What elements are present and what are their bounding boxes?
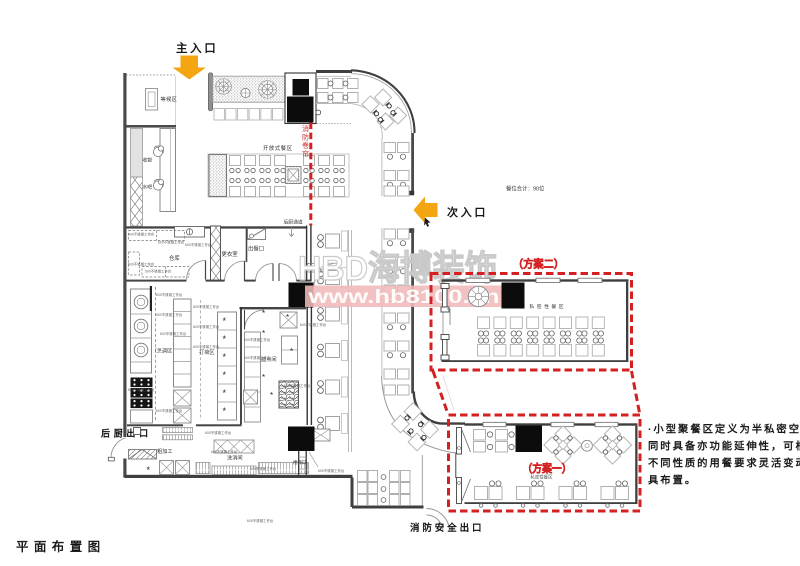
svg-text:消防安全出口: 消防安全出口 — [410, 522, 484, 534]
svg-text:·小型聚餐区定义为半私密空间，: ·小型聚餐区定义为半私密空间， — [648, 423, 800, 436]
svg-text:*: * — [147, 465, 151, 475]
svg-text:私密性餐区: 私密性餐区 — [530, 303, 567, 310]
svg-text:600不锈钢工作台: 600不锈钢工作台 — [128, 232, 154, 237]
svg-text:打荷区: 打荷区 — [199, 348, 215, 356]
svg-text:600不锈钢工作台: 600不锈钢工作台 — [205, 430, 231, 435]
svg-text:*: * — [286, 313, 289, 322]
svg-text:600不锈钢工作台: 600不锈钢工作台 — [284, 383, 310, 388]
svg-text:*: * — [262, 329, 265, 338]
svg-text:同时具备亦功能延伸性，可根据: 同时具备亦功能延伸性，可根据 — [648, 440, 800, 453]
svg-text:消防卷帘: 消防卷帘 — [302, 124, 310, 158]
svg-text:600不锈钢工作台: 600不锈钢工作台 — [185, 242, 211, 247]
svg-text:*: * — [262, 373, 265, 382]
svg-text:*: * — [223, 388, 227, 398]
svg-text:*: * — [223, 370, 227, 380]
svg-text:600不锈钢工作台: 600不锈钢工作台 — [193, 324, 219, 329]
svg-text:更衣室: 更衣室 — [222, 250, 239, 258]
svg-text:后厨出口: 后厨出口 — [101, 428, 152, 439]
svg-text:*: * — [223, 352, 227, 362]
svg-text:等候区: 等候区 — [161, 95, 178, 103]
svg-text:（方案一）: （方案一） — [523, 461, 572, 475]
svg-text:600不锈钢工作台: 600不锈钢工作台 — [211, 449, 237, 454]
svg-text:洗消间: 洗消间 — [227, 454, 243, 462]
svg-text:楼梯口: 楼梯口 — [293, 459, 306, 466]
svg-text:平面布置图: 平面布置图 — [16, 540, 106, 554]
svg-text:主入口: 主入口 — [176, 42, 218, 55]
svg-text:600不锈钢工作台: 600不锈钢工作台 — [193, 304, 219, 309]
svg-text:600不锈钢工作台: 600不锈钢工作台 — [128, 387, 154, 392]
svg-text:不同性质的用餐要求灵活变动家: 不同性质的用餐要求灵活变动家 — [648, 457, 800, 470]
svg-text:600不锈钢工作台: 600不锈钢工作台 — [156, 408, 182, 413]
svg-text:水吧: 水吧 — [143, 184, 153, 191]
svg-text:*: * — [262, 309, 265, 318]
svg-text:600不锈钢工作台: 600不锈钢工作台 — [318, 468, 344, 473]
svg-text:600不锈钢工作台: 600不锈钢工作台 — [145, 269, 171, 274]
svg-text:后厨通道: 后厨通道 — [284, 219, 303, 226]
svg-text:600不锈钢工作台: 600不锈钢工作台 — [156, 292, 182, 297]
svg-text:600不锈钢工作台: 600不锈钢工作台 — [128, 262, 154, 267]
svg-text:出餐口: 出餐口 — [248, 245, 264, 253]
svg-text:开放式餐区: 开放式餐区 — [263, 144, 293, 152]
svg-text:600不锈钢工作台: 600不锈钢工作台 — [300, 322, 326, 327]
svg-text:（烹调区: （烹调区 — [152, 347, 173, 355]
svg-text:600不锈钢工作台: 600不锈钢工作台 — [160, 331, 186, 336]
svg-text:粗加工: 粗加工 — [157, 447, 173, 455]
svg-text:600不锈钢工作台: 600不锈钢工作台 — [244, 355, 270, 360]
svg-text:600不锈钢工作台: 600不锈钢工作台 — [247, 518, 273, 523]
svg-text:600不锈钢工作台: 600不锈钢工作台 — [193, 344, 219, 349]
svg-text:600不锈钢工作台: 600不锈钢工作台 — [158, 240, 184, 245]
svg-text:*: * — [223, 334, 227, 344]
svg-text:餐位合计：90位: 餐位合计：90位 — [506, 185, 545, 193]
svg-text:600不锈钢工作台: 600不锈钢工作台 — [250, 466, 276, 471]
svg-text:具布置。: 具布置。 — [647, 474, 697, 487]
svg-text:收银: 收银 — [143, 157, 153, 164]
svg-text:仓库: 仓库 — [169, 254, 180, 262]
svg-text:*: * — [270, 391, 273, 400]
svg-text:*: * — [223, 406, 227, 416]
svg-text:600不锈钢工作台: 600不锈钢工作台 — [156, 312, 182, 317]
svg-text:600不锈钢工作台: 600不锈钢工作台 — [244, 337, 270, 342]
svg-text:（方案二）: （方案二） — [513, 257, 564, 271]
svg-text:*: * — [223, 316, 227, 326]
svg-text:*: * — [290, 347, 293, 356]
svg-text:次入口: 次入口 — [447, 205, 488, 219]
